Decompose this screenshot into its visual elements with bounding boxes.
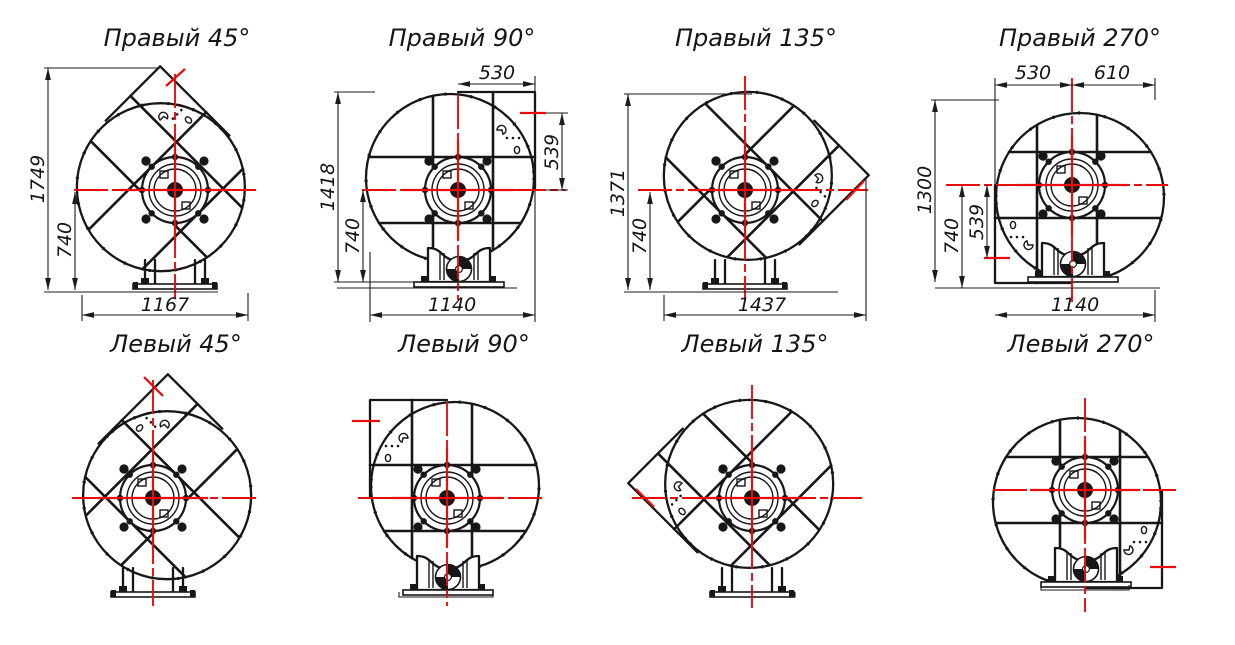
- dim-total-height: 1749: [27, 155, 49, 203]
- panel-left-135: Левый 135°: [628, 330, 868, 608]
- panel-title: Правый 90°: [389, 24, 536, 52]
- panel-right-90: Правый 90° 1418 740 539 530: [317, 24, 568, 322]
- panel-title: Левый 135°: [681, 330, 829, 358]
- dim-outlet-height: 539: [541, 134, 563, 170]
- dim-outlet-offset: 530: [1015, 62, 1051, 84]
- panel-left-270: Левый 270°: [993, 330, 1176, 612]
- dim-total-height: 1300: [914, 166, 936, 214]
- dim-width: 1140: [1051, 294, 1099, 316]
- dim-axis-height: 740: [941, 218, 963, 254]
- dim-width: 1437: [738, 294, 786, 316]
- fan-drawing: [628, 364, 868, 604]
- fan-drawing: [48, 374, 288, 614]
- drawing-canvas: Правый 45° 1749 740 1167 Правый 90°: [0, 0, 1235, 645]
- panel-title: Правый 270°: [999, 24, 1161, 52]
- fan-orientation-diagram: Правый 45° 1749 740 1167 Правый 90°: [0, 0, 1235, 645]
- dim-width: 1140: [428, 294, 476, 316]
- dim-outlet-height: 539: [966, 204, 988, 240]
- panel-left-90: Левый 90°: [352, 330, 544, 606]
- dim-right-offset: 610: [1094, 62, 1130, 84]
- panel-title: Правый 135°: [675, 24, 837, 52]
- panel-title: Левый 270°: [1007, 330, 1155, 358]
- panel-right-270: Правый 270° 530 610 1300 740 539: [914, 24, 1168, 322]
- dim-total-height: 1418: [317, 163, 339, 211]
- dim-axis-height: 740: [54, 222, 76, 258]
- panel-right-45: Правый 45° 1749 740 1167: [27, 24, 280, 321]
- panel-title: Левый 45°: [109, 330, 242, 358]
- fan-drawing: [629, 56, 869, 296]
- panel-left-45: Левый 45°: [48, 330, 288, 614]
- fan-drawing: [41, 66, 281, 306]
- fan-drawing: [995, 113, 1164, 283]
- dim-axis-height: 740: [342, 218, 364, 254]
- panel-title: Левый 90°: [397, 330, 530, 358]
- panel-right-135: Правый 135° 1371 740 1437: [607, 24, 869, 321]
- dim-axis-height: 740: [629, 218, 651, 254]
- fan-drawing: [993, 418, 1162, 590]
- panel-title: Правый 45°: [104, 24, 251, 52]
- dim-outlet-offset: 530: [479, 62, 515, 84]
- dim-total-height: 1371: [607, 169, 629, 217]
- dim-width: 1167: [141, 294, 189, 316]
